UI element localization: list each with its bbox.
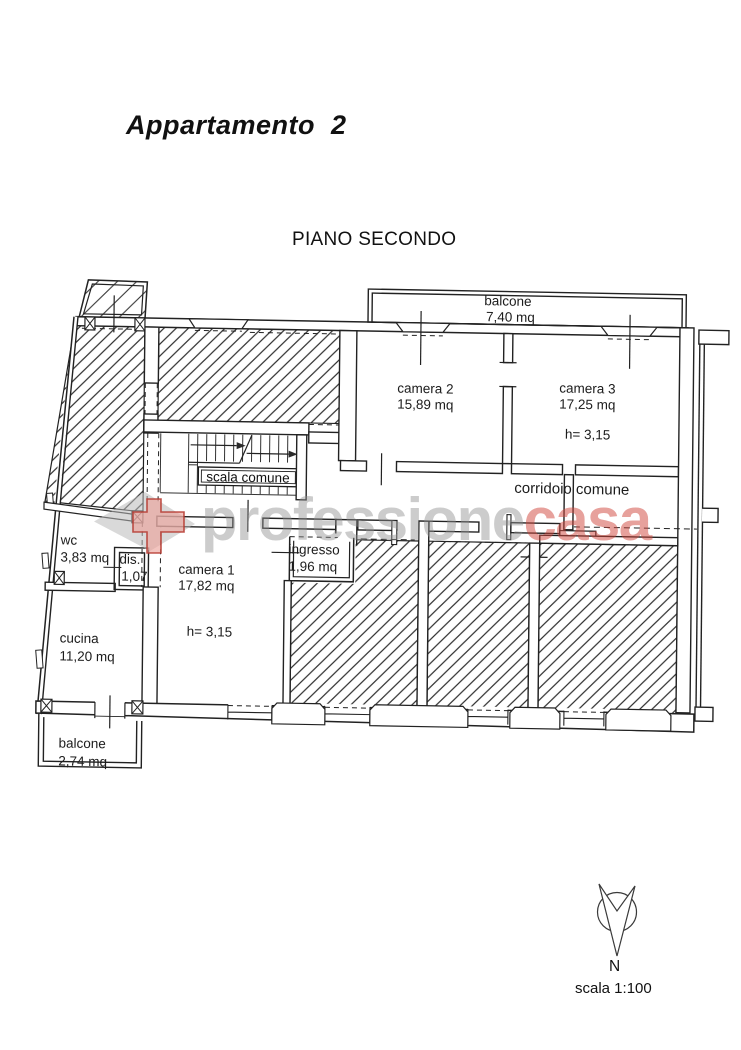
svg-text:wc: wc [60, 532, 78, 547]
svg-text:Appartamento 2: Appartamento 2 [125, 110, 347, 140]
svg-text:camera 1: camera 1 [178, 562, 234, 578]
svg-text:camera 3: camera 3 [559, 381, 615, 397]
svg-text:PIANO SECONDO: PIANO SECONDO [292, 229, 456, 250]
svg-text:h= 3,15: h= 3,15 [565, 427, 611, 443]
svg-text:balcone: balcone [484, 293, 531, 309]
svg-text:2,74 mq: 2,74 mq [58, 753, 107, 769]
svg-text:professionecasa: professionecasa [201, 486, 653, 553]
svg-text:h= 3,15: h= 3,15 [187, 624, 233, 640]
svg-text:scala comune: scala comune [206, 469, 289, 486]
svg-text:N: N [609, 958, 620, 975]
svg-text:balcone: balcone [58, 735, 105, 751]
svg-text:15,89 mq: 15,89 mq [397, 397, 453, 413]
svg-text:1,96 mq: 1,96 mq [288, 559, 337, 575]
svg-text:7,40 mq: 7,40 mq [486, 309, 535, 325]
svg-text:3,83 mq: 3,83 mq [60, 549, 109, 565]
svg-text:1,07: 1,07 [121, 569, 147, 584]
svg-text:dis.: dis. [119, 552, 140, 567]
svg-text:17,25 mq: 17,25 mq [559, 397, 615, 413]
svg-text:camera 2: camera 2 [397, 381, 453, 397]
svg-text:17,82 mq: 17,82 mq [178, 578, 234, 594]
svg-text:cucina: cucina [60, 630, 100, 646]
svg-text:scala 1:100: scala 1:100 [575, 980, 652, 997]
svg-text:11,20 mq: 11,20 mq [59, 648, 114, 664]
